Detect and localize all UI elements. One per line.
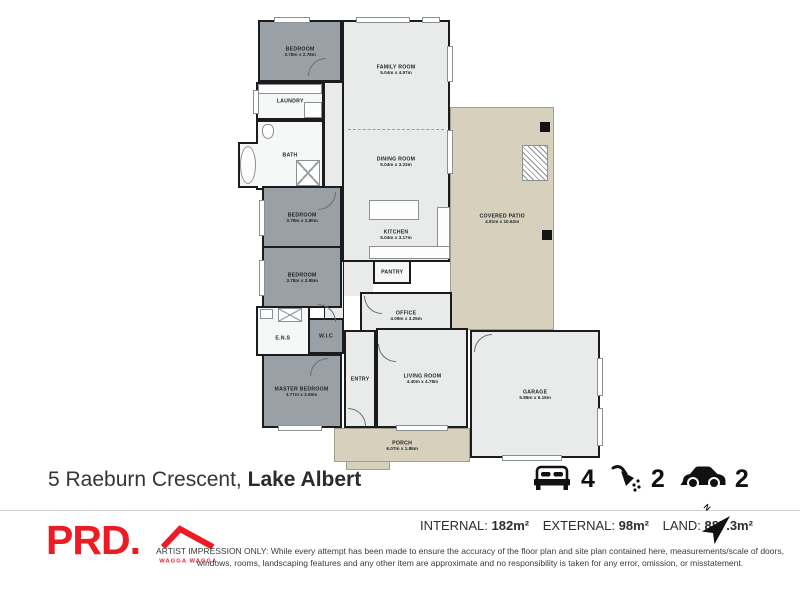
footer-divider — [0, 510, 800, 511]
window — [422, 17, 440, 23]
window — [597, 408, 603, 446]
window — [274, 17, 310, 23]
kitchen-island — [369, 200, 419, 220]
address-suburb: Lake Albert — [248, 468, 362, 491]
internal-value: 182m² — [492, 518, 530, 533]
patio-pier — [542, 230, 552, 240]
disclaimer-text: ARTIST IMPRESSION ONLY: While every atte… — [150, 546, 790, 570]
external-label: EXTERNAL: — [543, 518, 615, 533]
cars-count: 2 — [735, 465, 749, 494]
floorplan-page: { "plan": { "rooms": [ {"name": "BEDROOM… — [0, 0, 800, 591]
vanity — [260, 309, 273, 319]
property-stats: 4 2 2 — [532, 462, 749, 497]
shower — [296, 160, 320, 186]
internal-label: INTERNAL: — [420, 518, 488, 533]
room-master-bedroom: MASTER BEDROOM 3.77m x 3.60m — [262, 354, 342, 428]
north-arrow-icon: N — [698, 506, 738, 546]
room-dining: DINING ROOM 5.04m x 3.23m — [366, 156, 426, 167]
room-living: LIVING ROOM 4.40m x 4.78m — [376, 328, 468, 428]
room-bedroom-1: BEDROOM 3.78m x 2.78m — [258, 20, 342, 82]
external-value: 98m² — [619, 518, 649, 533]
car-icon — [680, 464, 726, 495]
room-porch: PORCH 6.07m x 1.85m — [334, 428, 470, 462]
room-family: FAMILY ROOM 5.04m x 4.97m — [366, 64, 426, 75]
bed-icon — [532, 464, 572, 496]
window — [356, 17, 410, 23]
family-dining-divider — [348, 129, 444, 130]
room-bedroom-3: BEDROOM 3.78m x 2.85m — [262, 246, 342, 308]
room-kitchen: KITCHEN 5.04m x 3.17m — [366, 229, 426, 240]
window — [259, 260, 265, 296]
window — [597, 358, 603, 396]
patio-hatch — [522, 145, 548, 181]
window — [502, 455, 562, 461]
window — [278, 425, 322, 431]
window — [259, 200, 265, 236]
corridor — [344, 260, 373, 296]
room-wic: W.I.C — [308, 318, 344, 354]
shower — [278, 308, 302, 322]
address-street: 5 Raeburn Crescent, — [48, 468, 242, 491]
room-covered-patio: COVERED PATIO 4.91m x 10.62m — [450, 107, 554, 330]
window — [447, 130, 453, 174]
shower-icon — [610, 462, 642, 497]
kitchen-counter — [369, 246, 450, 259]
window — [396, 425, 448, 431]
brand-name: PRD. — [46, 520, 140, 561]
appliance — [304, 102, 322, 118]
laundry-bench — [258, 84, 322, 94]
kitchen-counter — [437, 207, 450, 247]
room-pantry: PANTRY — [373, 260, 411, 284]
patio-pier — [540, 122, 550, 132]
toilet — [262, 124, 274, 139]
property-address: 5 Raeburn Crescent, Lake Albert — [48, 468, 361, 492]
floor-plan: COVERED PATIO 4.91m x 10.62m PORCH 6.07m… — [230, 10, 630, 472]
window — [447, 46, 453, 82]
land-label: LAND: — [663, 518, 701, 533]
beds-count: 4 — [581, 465, 595, 494]
area-summary: INTERNAL: 182m² EXTERNAL: 98m² LAND: 887… — [420, 518, 705, 533]
baths-count: 2 — [651, 465, 665, 494]
room-open-plan: FAMILY ROOM 5.04m x 4.97m DINING ROOM 5.… — [342, 20, 450, 262]
bathtub — [240, 146, 256, 184]
